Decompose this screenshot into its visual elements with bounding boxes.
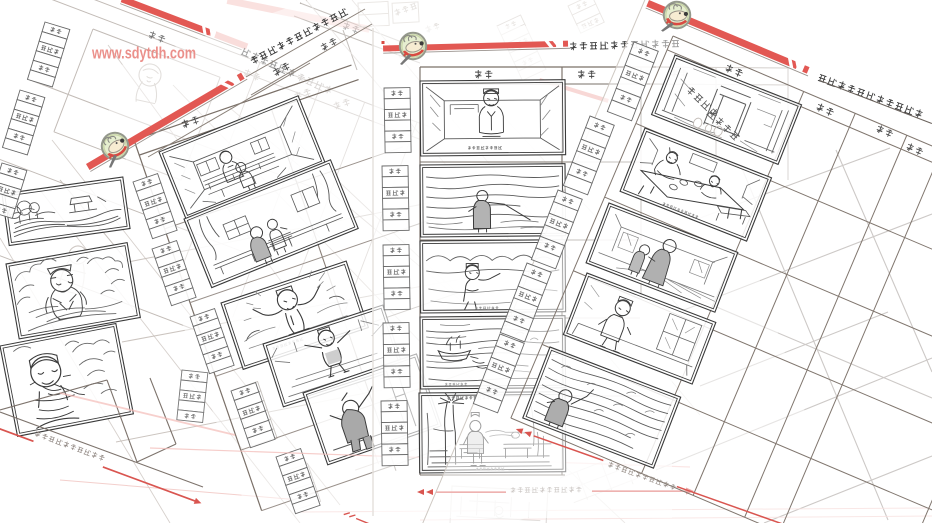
svg-text:www.sdytdh.com: www.sdytdh.com bbox=[91, 45, 196, 63]
